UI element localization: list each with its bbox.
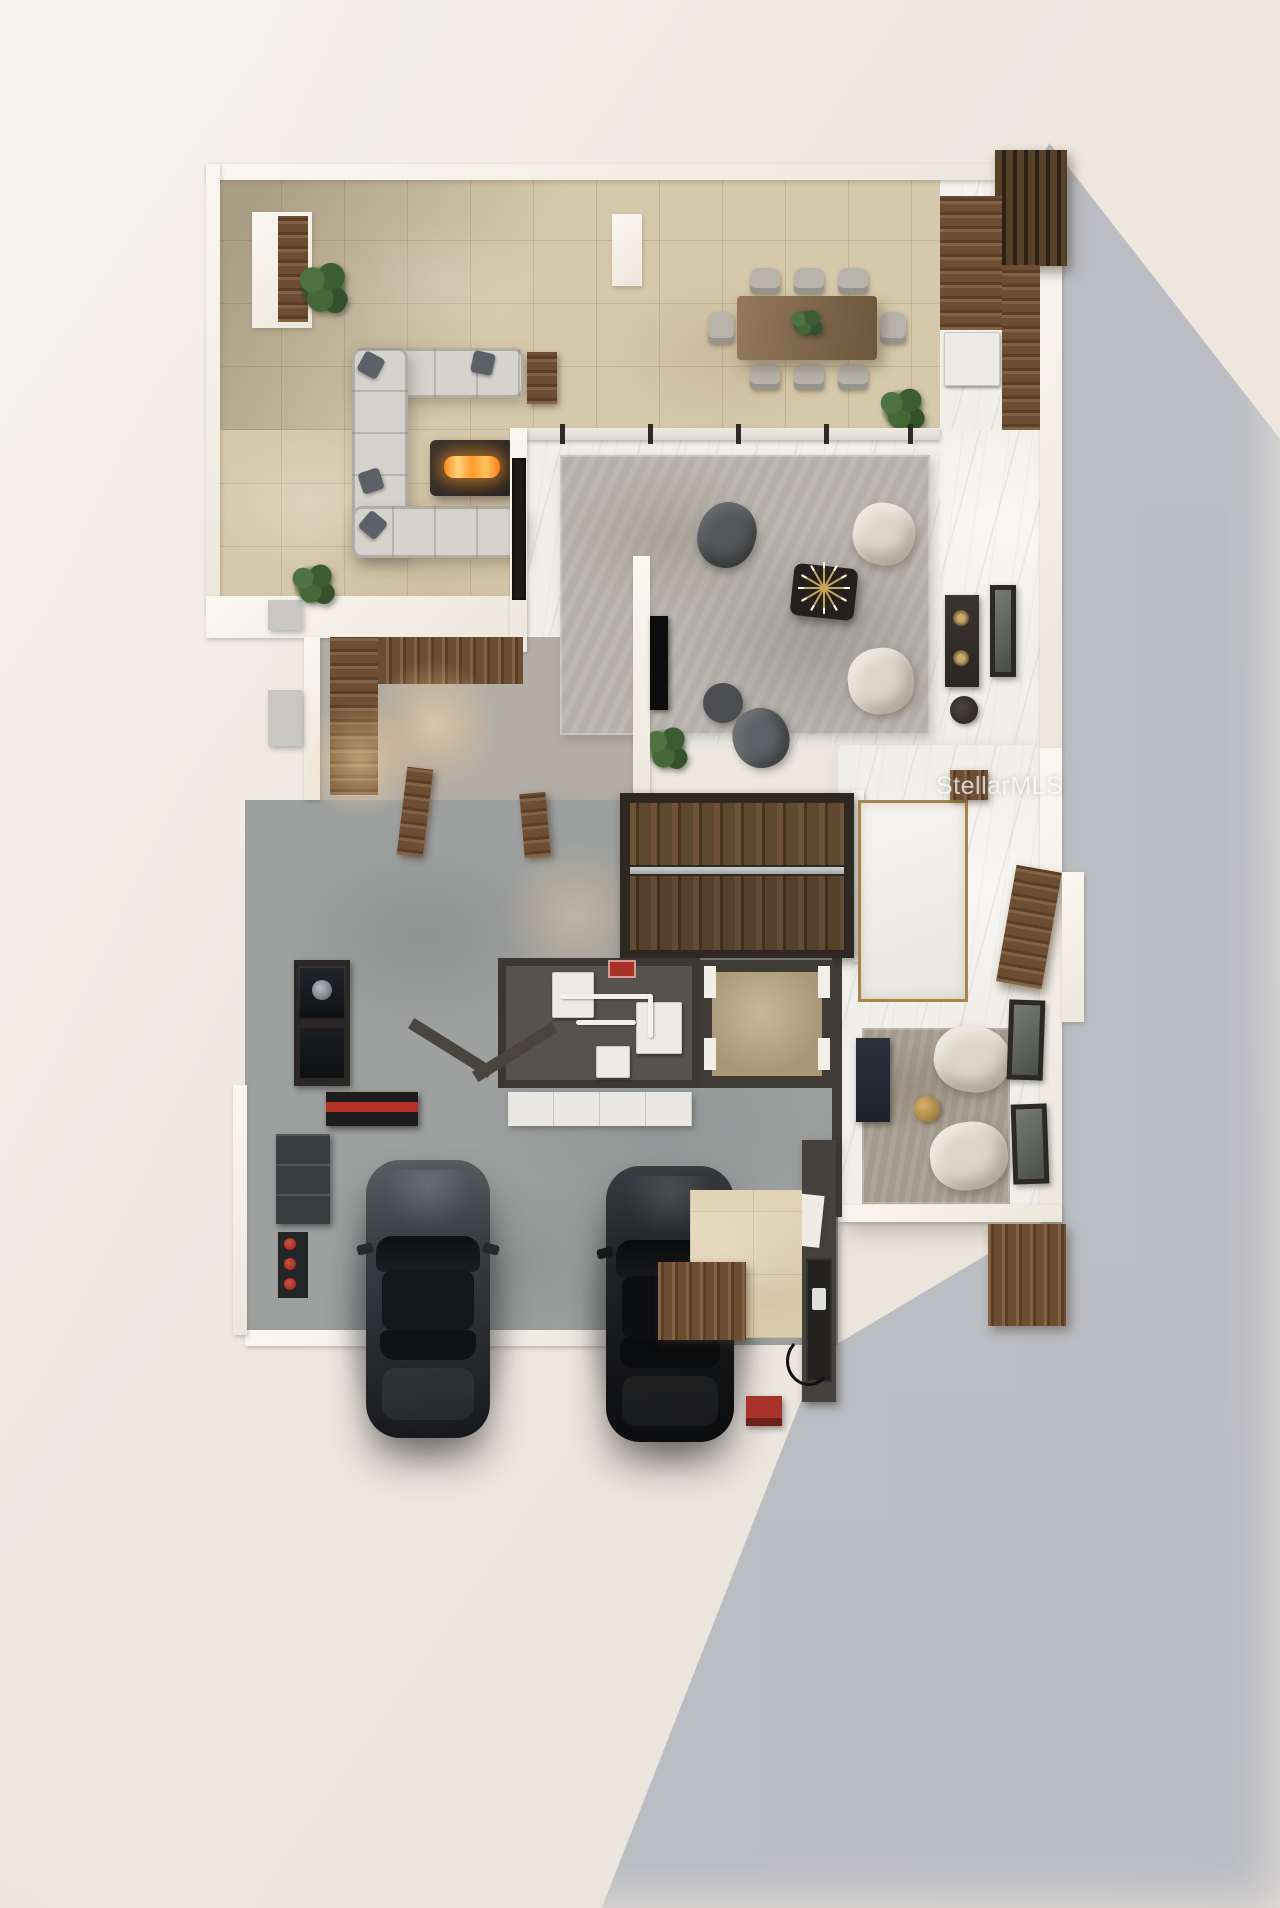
paint-can: [284, 1238, 296, 1250]
car-trunk: [382, 1368, 474, 1420]
sports-car: [366, 1160, 490, 1438]
wall-tv: [633, 556, 650, 812]
car-windshield: [376, 1236, 480, 1272]
vanity-sink: [953, 650, 969, 666]
storage-cabinet: [276, 1134, 330, 1224]
espresso-machine-dial: [312, 980, 332, 1000]
sliding-door-mullion: [560, 424, 565, 444]
wall-top: [206, 164, 1042, 180]
ac-unit: [268, 690, 302, 746]
throw-pillow: [470, 350, 496, 376]
car-rear-glass: [380, 1330, 476, 1360]
terrace-pier: [612, 214, 642, 286]
side-table: [527, 352, 557, 404]
cabana-counter: [944, 332, 1000, 386]
pipe: [560, 994, 652, 999]
dining-chair: [880, 312, 906, 344]
centerpiece-plant: [786, 310, 826, 336]
dining-chair: [708, 312, 734, 344]
closet-door-leaf: [818, 1038, 830, 1070]
dining-chair: [750, 364, 780, 390]
floor-plan-render: StellarMLS: [0, 0, 1280, 1908]
powder-vanity: [945, 595, 979, 687]
closet-door-leaf: [704, 966, 716, 998]
car-hood: [380, 1170, 476, 1228]
round-ottoman: [703, 683, 743, 723]
tv-panel: [650, 616, 668, 710]
fireplace: [512, 458, 526, 600]
potted-plant: [296, 258, 350, 320]
cabana-wood-floor: [940, 196, 1002, 330]
exterior-stoop: [1062, 872, 1084, 1022]
closet-door-leaf: [704, 1038, 716, 1070]
wood-wall-band: [1002, 265, 1040, 430]
framed-art: [990, 585, 1016, 677]
garage-cabinets: [508, 1092, 692, 1126]
car-mirror: [356, 1242, 374, 1256]
wall-wing-bottom: [838, 1205, 1062, 1222]
dining-chair: [794, 364, 824, 390]
ev-charger-glyph: [812, 1288, 826, 1310]
charger-cable: [786, 1336, 832, 1386]
watermark: StellarMLS: [936, 772, 1063, 801]
floor-inlay-brass: [858, 800, 968, 1002]
sliding-door-mullion: [908, 424, 913, 444]
potted-plant: [288, 562, 338, 608]
car-mirror: [596, 1246, 614, 1260]
framed-art: [1007, 999, 1046, 1080]
sideboard: [856, 1038, 890, 1122]
sliding-glass-wall: [525, 428, 940, 440]
roof-slats: [995, 150, 1067, 266]
car-trunk: [622, 1376, 718, 1426]
utility-unit: [596, 1046, 630, 1078]
stair-flight-lower: [630, 876, 844, 950]
closet-door-leaf: [818, 966, 830, 998]
sliding-door-mullion: [648, 424, 653, 444]
workbench-red-drawers: [326, 1102, 418, 1112]
interior-door: [519, 792, 550, 858]
wood-deck: [988, 1224, 1066, 1326]
stair-flight-upper: [630, 803, 844, 865]
dining-chair: [838, 364, 868, 390]
dining-chair: [794, 268, 824, 294]
car-roof-glass: [382, 1270, 474, 1330]
wall-garage-left-marble: [233, 1085, 247, 1335]
toilet: [950, 696, 978, 724]
pipe: [648, 994, 653, 1038]
wall-lanai-bottom: [206, 596, 525, 638]
pipe: [576, 1020, 636, 1025]
red-utility-box: [608, 960, 636, 978]
fire-flames: [444, 456, 500, 478]
ceiling-light-glow: [300, 700, 420, 820]
sliding-door-mullion: [824, 424, 829, 444]
wall-left-lanai: [206, 164, 220, 612]
wood-deck: [658, 1262, 746, 1340]
car-rear-glass: [620, 1338, 720, 1368]
tool-cart: [746, 1396, 782, 1426]
paint-can: [284, 1258, 296, 1270]
dining-chair: [838, 268, 868, 294]
paint-can: [284, 1278, 296, 1290]
hvac-unit: [636, 1002, 682, 1054]
gold-side-table: [914, 1096, 940, 1122]
ac-unit: [268, 600, 302, 630]
sputnik-chandelier: [796, 560, 852, 616]
framed-art: [1011, 1103, 1050, 1184]
vanity-sink: [953, 610, 969, 626]
potted-plant: [876, 386, 928, 434]
coffee-grinder: [300, 1028, 344, 1078]
closet-floor: [712, 972, 822, 1076]
glass-railing: [630, 867, 844, 874]
sliding-door-mullion: [736, 424, 741, 444]
dining-chair: [750, 268, 780, 294]
